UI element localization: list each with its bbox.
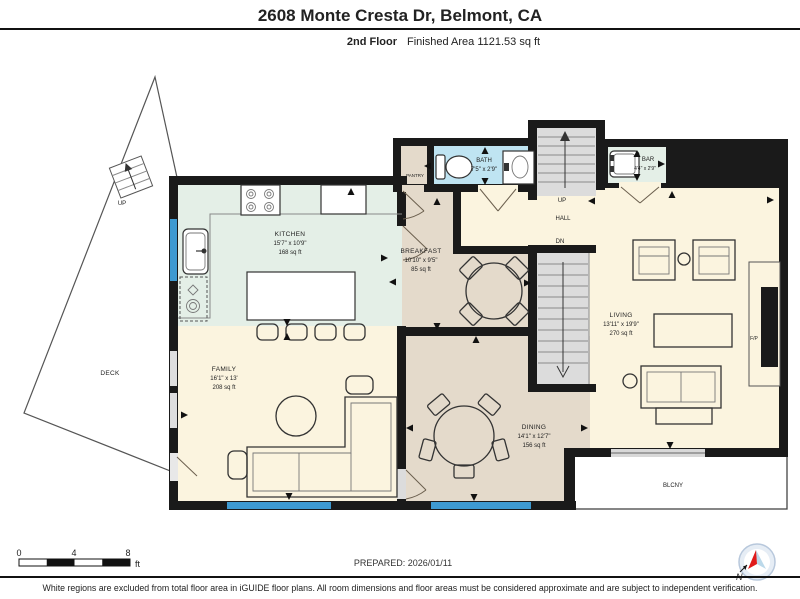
dining-dims: 14'1" x 12'7" xyxy=(518,434,551,440)
upper-stairs xyxy=(537,128,596,196)
kitchen-label: KITCHEN xyxy=(275,231,306,238)
breakfast-dims: 10'10" x 9'5" xyxy=(405,258,438,264)
floorplan-canvas: 2608 Monte Cresta Dr, Belmont, CA 2nd Fl… xyxy=(0,0,800,599)
hall-dn-label: DN xyxy=(556,239,565,245)
dining-window xyxy=(431,502,531,509)
scale-tick-0: 0 xyxy=(16,548,21,558)
stove xyxy=(241,185,280,215)
kitchen-area: 168 sq ft xyxy=(278,250,301,256)
footer: White regions are excluded from total fl… xyxy=(0,576,800,593)
dining-area: 156 sq ft xyxy=(522,443,545,449)
toilet-bowl xyxy=(446,156,472,178)
bar-dims: 4'4" x 2'9" xyxy=(634,166,656,172)
hall-up-label: UP xyxy=(558,198,566,204)
family-label: FAMILY xyxy=(212,366,237,373)
family-side-window-2 xyxy=(170,393,177,428)
deck-up-label: UP xyxy=(118,201,126,207)
deck-outline xyxy=(24,77,178,474)
balcony-label: BLCNY xyxy=(663,483,683,489)
bar-label: BAR xyxy=(642,157,655,163)
living-area: 270 sq ft xyxy=(609,331,632,337)
kitchen-island xyxy=(247,272,355,320)
scale-unit: ft xyxy=(135,559,141,569)
toilet-tank xyxy=(436,155,445,179)
family-side-window-1 xyxy=(170,351,177,386)
balcony-outline xyxy=(566,450,787,509)
scale-tick-8: 8 xyxy=(125,548,130,558)
prepared-date: PREPARED: 2026/01/11 xyxy=(354,558,452,568)
fireplace-label: F/P xyxy=(750,336,758,342)
family-window xyxy=(227,502,331,509)
scale-tick-4: 4 xyxy=(71,548,76,558)
scale-bar: 0 4 8 ft xyxy=(16,548,140,569)
dining-label: DINING xyxy=(522,424,547,431)
family-floor xyxy=(174,326,402,505)
breakfast-area: 85 sq ft xyxy=(411,267,431,273)
page-title: 2608 Monte Cresta Dr, Belmont, CA xyxy=(258,6,542,25)
pantry-label: PANTRY xyxy=(406,173,424,178)
header-divider xyxy=(0,28,800,30)
family-dims: 16'1" x 13' xyxy=(210,376,237,382)
main-stairs xyxy=(537,253,589,384)
living-label: LIVING xyxy=(609,312,632,319)
deck: UP DECK xyxy=(24,77,178,474)
refrigerator xyxy=(321,185,366,214)
balcony: BLCNY xyxy=(566,450,787,509)
bath-label: BATH xyxy=(476,158,492,164)
floor-label: 2nd Floor xyxy=(347,36,398,48)
deck-label: DECK xyxy=(100,370,120,377)
living-dims: 13'11" x 19'9" xyxy=(603,322,639,328)
footer-divider xyxy=(0,576,800,578)
kitchen-window xyxy=(170,219,177,281)
finished-area-label: Finished Area 1121.53 sq ft xyxy=(407,36,540,48)
kitchen-dims: 15'7" x 10'9" xyxy=(274,241,307,247)
bath-dims: 7'5" x 2'9" xyxy=(471,167,497,173)
breakfast-label: BREAKFAST xyxy=(401,248,442,255)
floorplan-page: 2608 Monte Cresta Dr, Belmont, CA 2nd Fl… xyxy=(0,0,800,599)
fireplace: F/P xyxy=(749,262,780,386)
header: 2608 Monte Cresta Dr, Belmont, CA 2nd Fl… xyxy=(0,6,800,48)
family-area: 208 sq ft xyxy=(212,385,235,391)
disclaimer-text: White regions are excluded from total fl… xyxy=(43,583,758,593)
hall-label: HALL xyxy=(555,216,571,222)
